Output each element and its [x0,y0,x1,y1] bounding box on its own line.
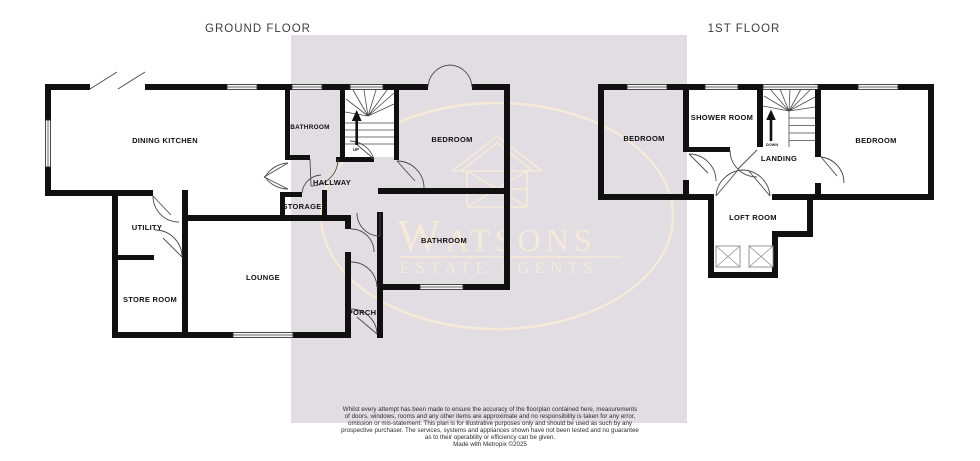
room-label-landing: LANDING [761,154,797,163]
double-door-icon [264,163,288,189]
door-arc-icon [821,157,844,183]
room-label-bedroom-gf: BEDROOM [431,135,472,144]
window-symbol [627,85,667,90]
room-label-store-room: STORE ROOM [123,295,177,304]
room-label-porch: PORCH [348,308,377,317]
door-arc-icon [155,230,182,257]
room-label-shower-room: SHOWER ROOM [691,113,753,122]
window-symbol [705,85,738,90]
window-symbol [227,85,257,90]
disclaimer: Whilst every attempt has been made to en… [341,406,639,448]
disclaimer-line-1: Whilst every attempt has been made to en… [343,406,637,413]
watermark-tagline-text: ESTATE AGENTS [400,258,598,277]
window-symbol [292,85,322,90]
room-label-bathroom-gf2: BATHROOM [421,236,467,245]
roof-window-icon [749,246,773,267]
window-symbol [420,285,463,290]
room-label-lounge: LOUNGE [246,273,280,282]
room-label-bedroom-right: BEDROOM [855,136,896,145]
floorplan-page: Watsons ESTATE AGENTS GROUND FLOOR 1ST F… [0,0,980,461]
window-symbol [233,333,293,338]
room-label-loft-room: LOFT ROOM [729,213,777,222]
disclaimer-line-4: prospective purchaser. The services, sys… [341,427,639,434]
metropix-credit: Made with Metropix ©2025 [453,441,527,448]
disclaimer-line-2: of doors, windows, rooms and any other i… [345,413,636,420]
double-door-icon [716,170,770,196]
stair-direction-label: DOWN [766,142,779,147]
first-floor-title: 1ST FLOOR [708,23,781,35]
window-symbol [858,85,898,90]
door-arc-icon [730,150,757,177]
roof-window-icon [716,246,740,267]
door-arc-icon [153,196,179,222]
room-label-bathroom-gf: BATHROOM [290,124,330,131]
room-label-dining-kitchen: DINING KITCHEN [132,136,198,145]
window-symbol [350,85,383,90]
disclaimer-line-3: omission or mis-statement. This plan is … [348,420,633,427]
room-label-storage: STORAGE [282,202,321,211]
room-label-bedroom-left: BEDROOM [623,134,664,143]
room-label-hallway: HALLWAY [313,178,351,187]
opening-zigzag-icon [90,72,145,89]
ground-floor-title: GROUND FLOOR [205,23,311,35]
window-symbol [46,120,51,167]
disclaimer-line-5: as to their operability or efficiency ca… [425,434,556,441]
room-label-utility: UTILITY [132,223,162,232]
loft-roof-windows [716,246,773,267]
floorplan-canvas: Watsons ESTATE AGENTS GROUND FLOOR 1ST F… [0,0,980,461]
door-arc-icon [689,154,716,181]
window-symbol [763,85,818,90]
stair-direction-label: UP [353,147,359,152]
